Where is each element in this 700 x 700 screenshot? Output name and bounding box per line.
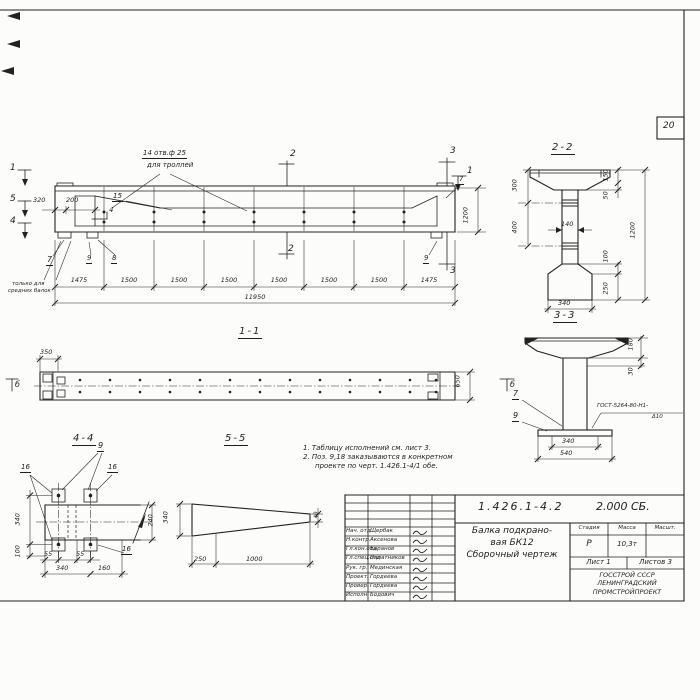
pos-label-7-left: 7 [46,256,53,266]
column-header-mass: Масса [609,526,645,532]
column-header-scale: Масшт. [647,526,683,532]
chain-dim: 1500 [115,277,143,284]
dim-340-bottom-s44: 340 [56,565,68,572]
note-line-3: проекте по черт. 1.426.1-4/1 обе. [315,463,438,470]
sheet-number: Лист 1 [571,559,626,566]
chain-dim: 1500 [215,277,243,284]
main-elevation-view [18,158,486,306]
dim-1200-section: 1200 [630,222,637,239]
section-2-2-view [518,167,650,313]
weld-callout-line1: ГОСТ-5264-80-Н1- [597,404,648,410]
row-role: Провер. [346,584,369,590]
section-marker-2-bottom: 2 [288,245,294,254]
pos-label-8-left: 8 [111,255,117,264]
pos-label-16-left: 16 [20,464,31,473]
section-3-3-title: 3-3 [553,311,577,323]
chain-dim: 1475 [415,277,443,284]
row-role: Н.контр. [346,538,371,544]
row-role: Нач. отд [346,529,371,535]
dim-340-s33: 340 [562,438,574,445]
org-line-1: ГОССТРОЙ СССР [571,572,683,579]
dim-320: 320 [33,197,45,204]
pos-label-9-right: 9 [423,255,429,264]
view-1-1-title: 1-1 [238,327,262,339]
dim-650: 650 [455,375,462,387]
section-4-4-view [26,453,156,578]
chain-dim: 1475 [65,277,93,284]
hole-note-line1: 14 отв.ф 25 [142,150,187,159]
doc-number: 1.426.1-4.2 [478,501,563,512]
pos-label-16-bottom: 16 [121,546,132,555]
chain-dim: 1500 [365,277,393,284]
row-name: Бодович [370,593,394,599]
row-name: Аксенова [370,538,397,544]
pos-label-9-left: 9 [86,255,92,264]
section-3-3-view [522,335,683,462]
page-number: 20 [663,122,674,131]
view-1-1 [6,355,514,403]
row-name: Гордеева [370,584,397,590]
dim-140: 140 [561,221,573,228]
section-5-5-title: 5-5 [224,434,248,446]
chain-dim: 1500 [315,277,343,284]
row-name: Гордеева [370,575,397,581]
middle-beams-note-line2: средних балок [8,289,51,295]
dim-40-s55: 40 [315,512,321,519]
product-title-line3: Сборочный чертеж [456,551,568,560]
dim-300: 300 [512,179,519,191]
section-2-2-title: 2-2 [551,143,575,155]
section-marker-1-left: 1 [10,164,16,173]
cut-label-4: 4 [109,207,113,214]
sheets-total: Листов 3 [628,559,683,566]
hole-note-line2: для троллей [147,162,193,169]
dim-240-s44: 240 [148,514,155,526]
dim-150: 150 [603,169,610,181]
chain-dim: 1500 [265,277,293,284]
section-marker-3-bottom: 3 [450,267,456,276]
dim-30: 30 [628,367,635,375]
dim-200: 200 [66,197,78,204]
dim-160: 160 [98,565,110,572]
doc-code: 2.000 СБ. [596,501,650,512]
pos-label-9-s33: 9 [512,412,519,422]
dim-340-left-s44: 340 [15,513,22,525]
row-name: Палатников [370,556,405,562]
org-line-3: ПРОМСТРОЙПРОЕКТ [571,589,683,596]
sheet-frame [0,10,700,601]
dim-250: 250 [603,282,610,294]
pos-label-7-right: 7 [458,176,464,185]
dim-250-s55: 250 [194,556,206,563]
section-marker-2-top: 2 [290,150,296,159]
row-name: Щербак [370,529,393,535]
dim-1200-right: 1200 [463,207,470,224]
pos-label-9-s44: 9 [97,442,104,452]
pos-label-15: 15 [112,193,123,202]
note-line-2: 2. Поз. 9,18 заказываются в конкретном [303,454,453,461]
marker-b-left: б [15,381,20,389]
mass-value: 10,3т [609,541,645,548]
dim-100: 100 [603,250,610,262]
product-title-line1: Балка подкрано- [456,527,568,536]
org-line-2: ЛЕНИНГРАДСКИЙ [571,580,683,587]
section-marker-1-right: 1 [467,167,473,176]
section-marker-5-left: 5 [10,195,16,204]
row-role: Рук. гр. [346,566,368,572]
drawing-sheet: 20 14 отв.ф 25 для троллей 1 5 4 320 200… [0,0,700,700]
section-marker-4-left: 4 [10,217,16,226]
note-line-1: 1. Таблицу исполнений см. лист 3. [303,445,431,452]
row-name: Мединская [370,566,402,572]
row-role: Проект. [346,575,369,581]
row-name: Баранов [370,547,394,553]
chain-dim: 1500 [165,277,193,284]
dim-1000-s55: 1000 [246,556,263,563]
dim-50: 50 [603,191,610,199]
dim-400: 400 [512,221,519,233]
dim-350: 350 [40,349,52,356]
dim-55-a: 55 [44,551,52,558]
product-title-line2: вая БК12 [456,539,568,548]
section-marker-3-top: 3 [450,147,456,156]
marker-b-right: б [510,381,515,389]
dim-540: 540 [560,450,572,457]
pos-label-7-s33: 7 [512,390,519,400]
column-header-stage: Стадия [571,526,607,532]
stage-value: Р [571,540,607,549]
dim-340-s55: 340 [163,511,170,523]
section-4-4-title: 4-4 [72,434,96,446]
dim-total-11950: 11950 [235,294,275,301]
row-role: Исполн. [346,593,369,599]
dim-55-b: 55 [76,551,84,558]
dim-180: 180 [628,338,635,350]
dim-340-s22: 340 [558,300,570,307]
pos-label-16-right: 16 [107,464,118,473]
weld-callout-line2: Δ10 [652,415,663,421]
dim-100-s44: 100 [15,545,22,557]
middle-beams-note-line1: только для [12,282,44,288]
